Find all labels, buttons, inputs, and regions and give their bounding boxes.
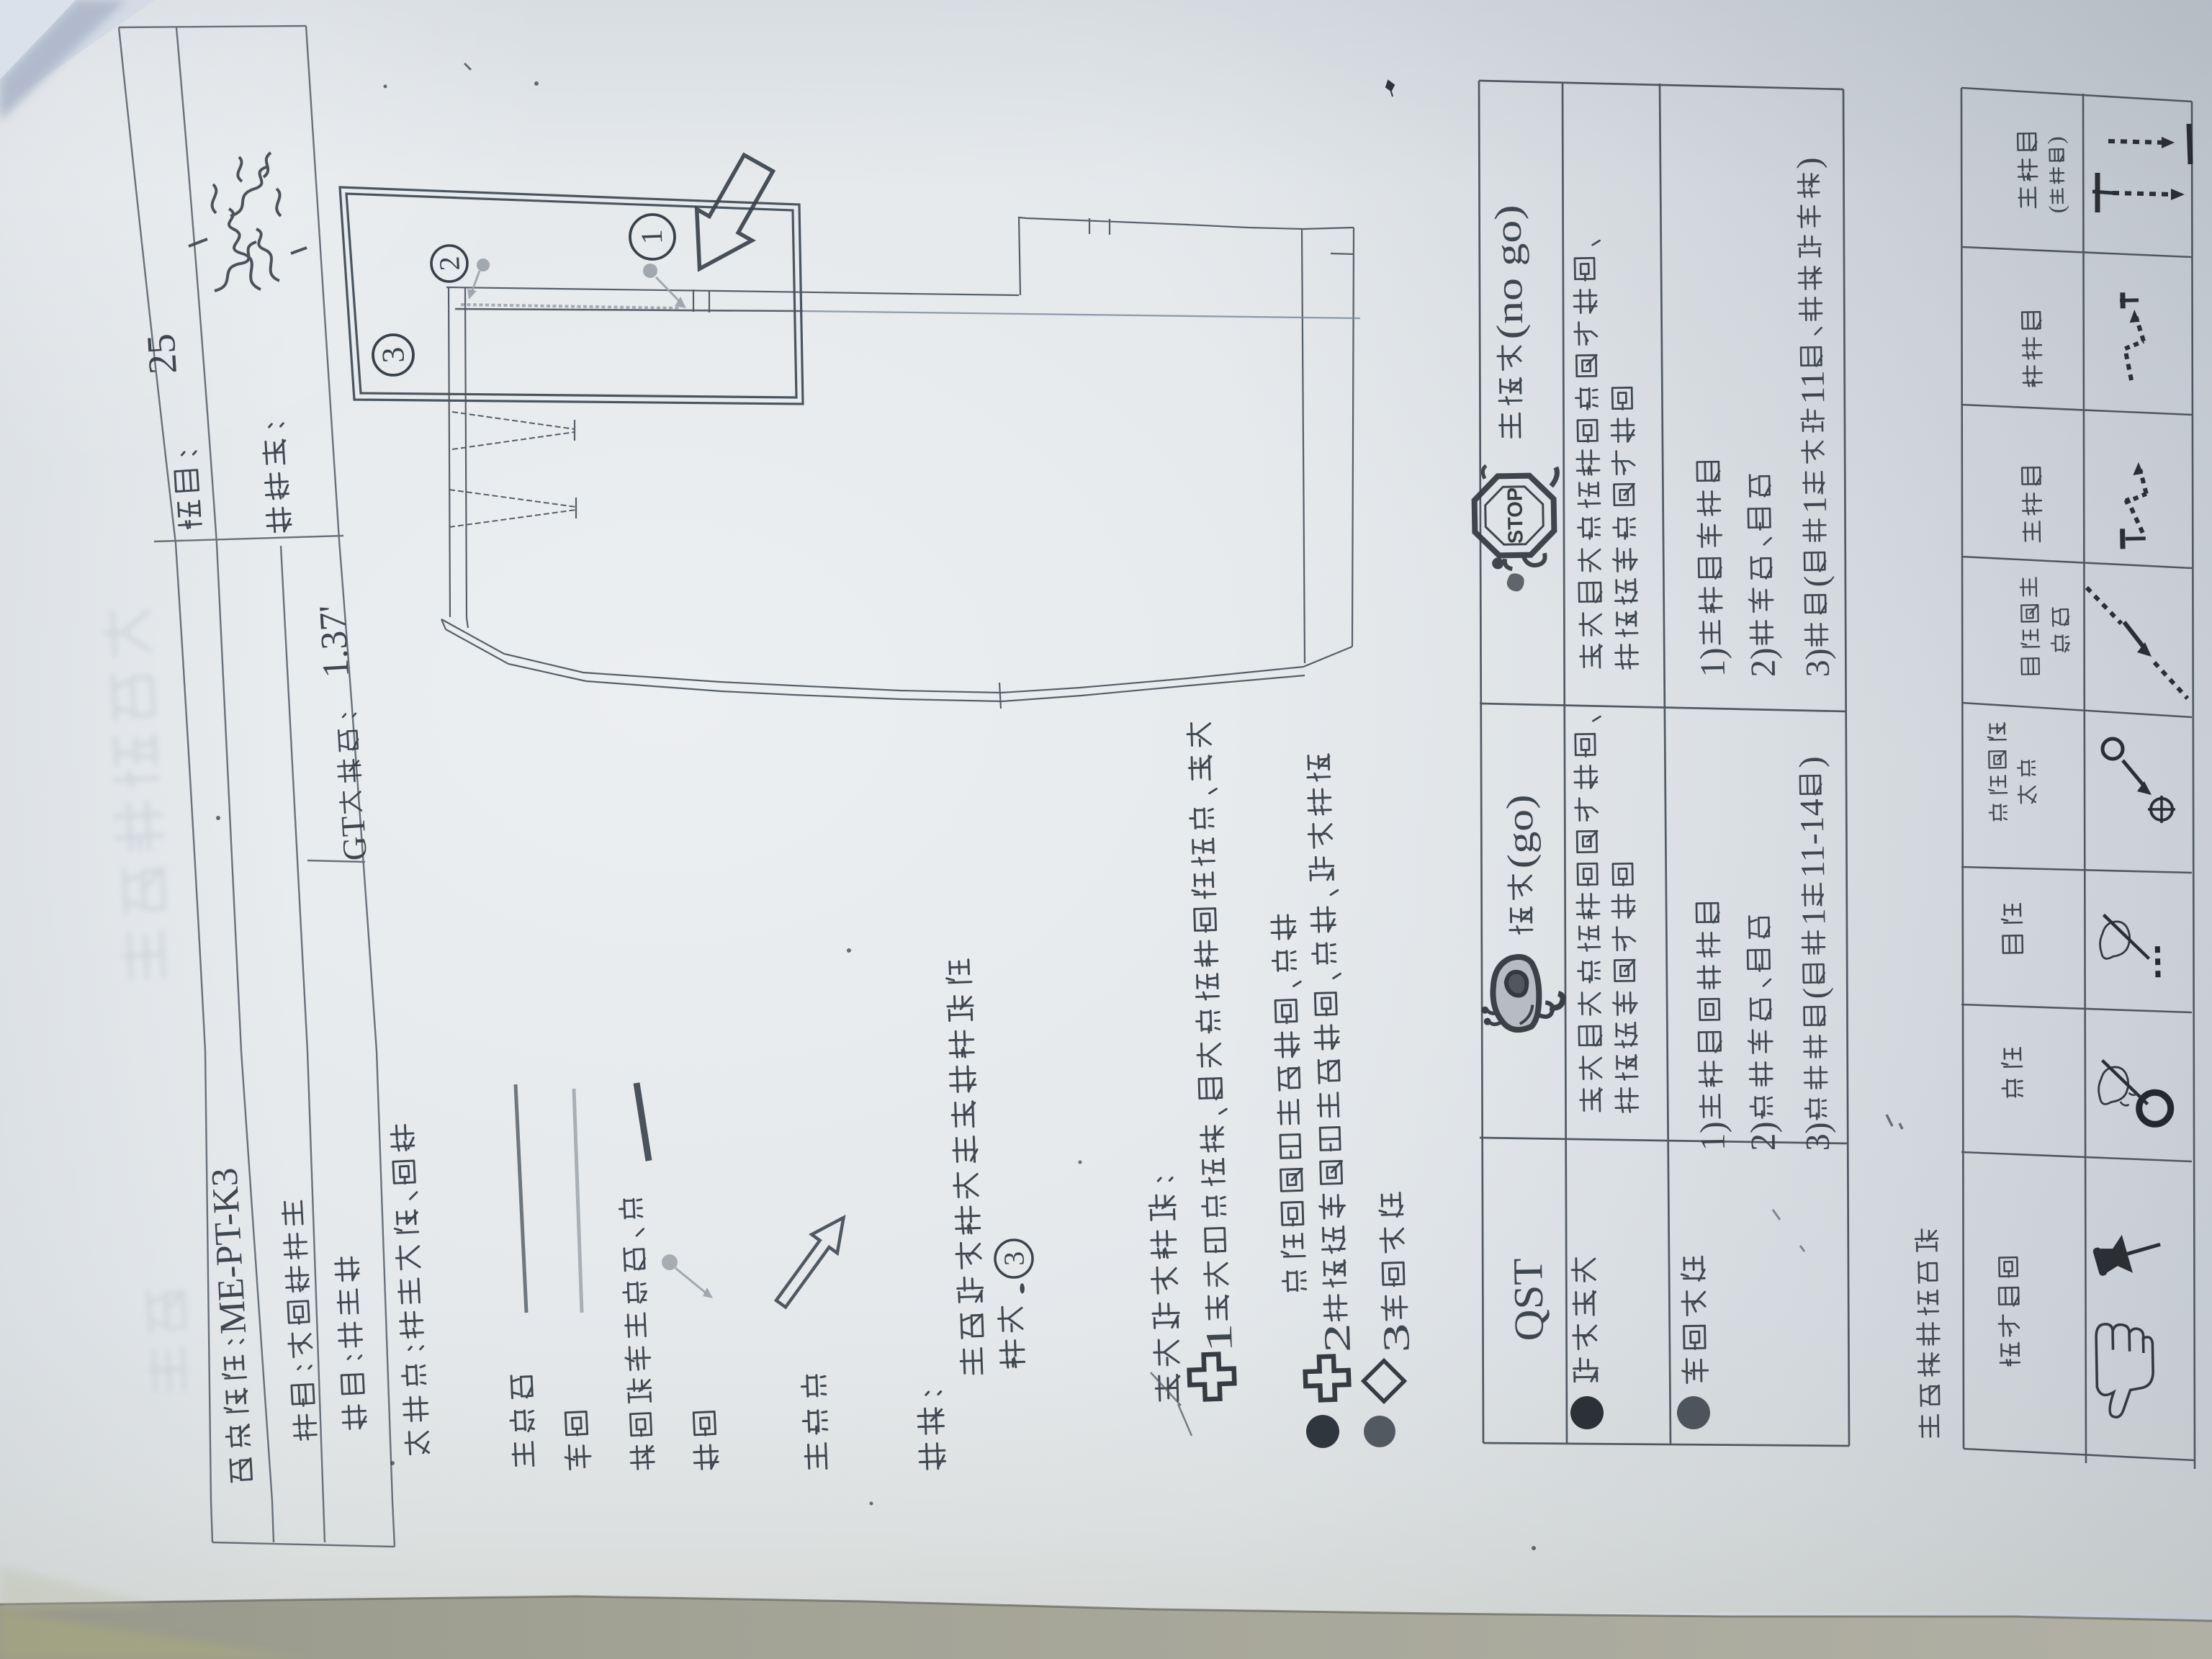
svg-text:): ) — [2043, 136, 2068, 145]
svg-text:1: 1 — [1795, 908, 1833, 926]
svg-text:3): 3) — [1799, 1122, 1837, 1151]
svg-text:): ) — [1792, 756, 1830, 768]
svg-text:2): 2) — [1743, 1121, 1783, 1151]
svg-text:11-14: 11-14 — [1793, 799, 1832, 878]
svg-text:3: 3 — [375, 346, 411, 364]
svg-text:2: 2 — [433, 256, 466, 271]
svg-text:1.37': 1.37' — [312, 604, 357, 679]
svg-text:(no go): (no go) — [1488, 204, 1531, 340]
svg-text:1: 1 — [1199, 1323, 1241, 1354]
svg-text:.: . — [989, 1277, 1033, 1300]
svg-text:STOP: STOP — [1503, 487, 1527, 544]
svg-text:GT: GT — [334, 815, 374, 862]
svg-text:3): 3) — [1799, 648, 1837, 678]
svg-text:(: ( — [2044, 205, 2069, 214]
svg-text:1: 1 — [636, 229, 670, 246]
svg-text:11: 11 — [1794, 370, 1833, 405]
svg-text:3: 3 — [1376, 1323, 1418, 1354]
svg-text:(: ( — [1797, 987, 1834, 999]
svg-text:): ) — [1790, 157, 1827, 169]
svg-text:1): 1) — [1692, 647, 1732, 678]
svg-text:(go): (go) — [1500, 794, 1542, 869]
svg-text:25: 25 — [139, 333, 186, 376]
svg-text:3: 3 — [997, 1251, 1030, 1267]
svg-text:(: ( — [1798, 575, 1835, 588]
svg-text:1: 1 — [1797, 496, 1834, 514]
svg-text:2: 2 — [1317, 1323, 1359, 1354]
svg-text:2): 2) — [1743, 647, 1783, 678]
svg-text:QST: QST — [1504, 1258, 1552, 1341]
svg-text:1): 1) — [1692, 1121, 1732, 1151]
